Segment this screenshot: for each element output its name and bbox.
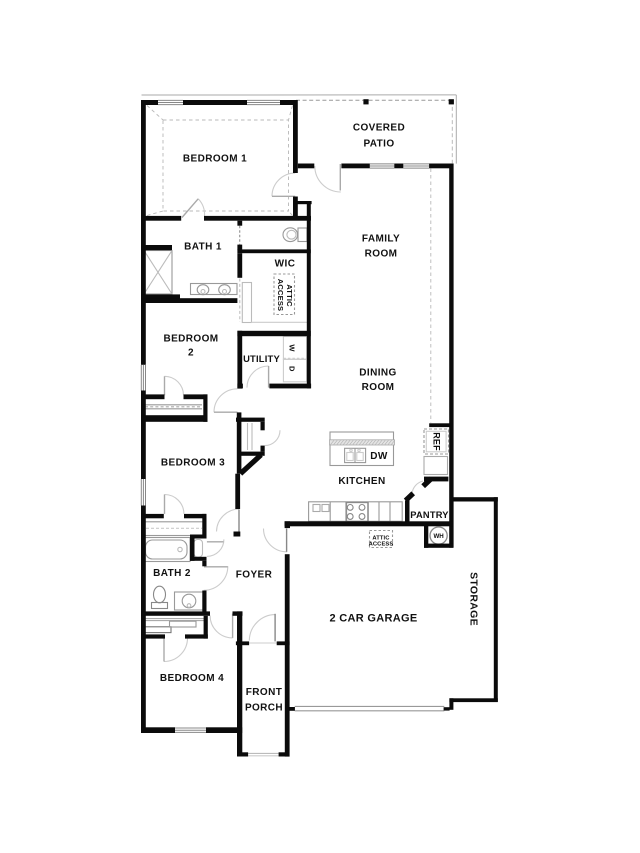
- svg-text:UTILITY: UTILITY: [243, 353, 280, 364]
- svg-text:FRONT: FRONT: [246, 687, 282, 698]
- svg-text:2 CAR GARAGE: 2 CAR GARAGE: [330, 613, 418, 625]
- svg-text:W: W: [287, 344, 296, 352]
- svg-text:STORAGE: STORAGE: [467, 572, 479, 626]
- svg-text:BEDROOM 4: BEDROOM 4: [160, 673, 224, 684]
- svg-text:FOYER: FOYER: [236, 570, 273, 581]
- svg-text:PATIO: PATIO: [363, 139, 394, 150]
- svg-text:FAMILY: FAMILY: [362, 234, 400, 245]
- svg-text:ACCESS: ACCESS: [276, 279, 285, 311]
- svg-text:BATH 1: BATH 1: [184, 242, 222, 253]
- svg-text:KITCHEN: KITCHEN: [338, 476, 385, 487]
- svg-text:REF: REF: [431, 432, 441, 451]
- svg-text:BEDROOM: BEDROOM: [163, 334, 218, 345]
- svg-text:ACCESS: ACCESS: [369, 542, 394, 548]
- svg-text:ATTIC: ATTIC: [372, 535, 390, 541]
- svg-text:ROOM: ROOM: [362, 382, 395, 393]
- svg-text:BEDROOM 1: BEDROOM 1: [183, 154, 247, 165]
- svg-text:ROOM: ROOM: [365, 249, 398, 260]
- svg-text:WH: WH: [433, 533, 444, 540]
- svg-text:PANTRY: PANTRY: [410, 510, 449, 520]
- svg-text:DW: DW: [370, 451, 388, 462]
- svg-text:WIC: WIC: [275, 259, 296, 270]
- svg-text:COVERED: COVERED: [353, 123, 405, 134]
- svg-text:2: 2: [188, 348, 194, 359]
- svg-text:BEDROOM 3: BEDROOM 3: [161, 458, 225, 469]
- svg-text:ATTIC: ATTIC: [285, 284, 294, 307]
- svg-text:DINING: DINING: [359, 368, 396, 379]
- svg-text:PORCH: PORCH: [245, 703, 283, 714]
- svg-text:D: D: [287, 366, 296, 372]
- svg-text:BATH 2: BATH 2: [153, 568, 191, 579]
